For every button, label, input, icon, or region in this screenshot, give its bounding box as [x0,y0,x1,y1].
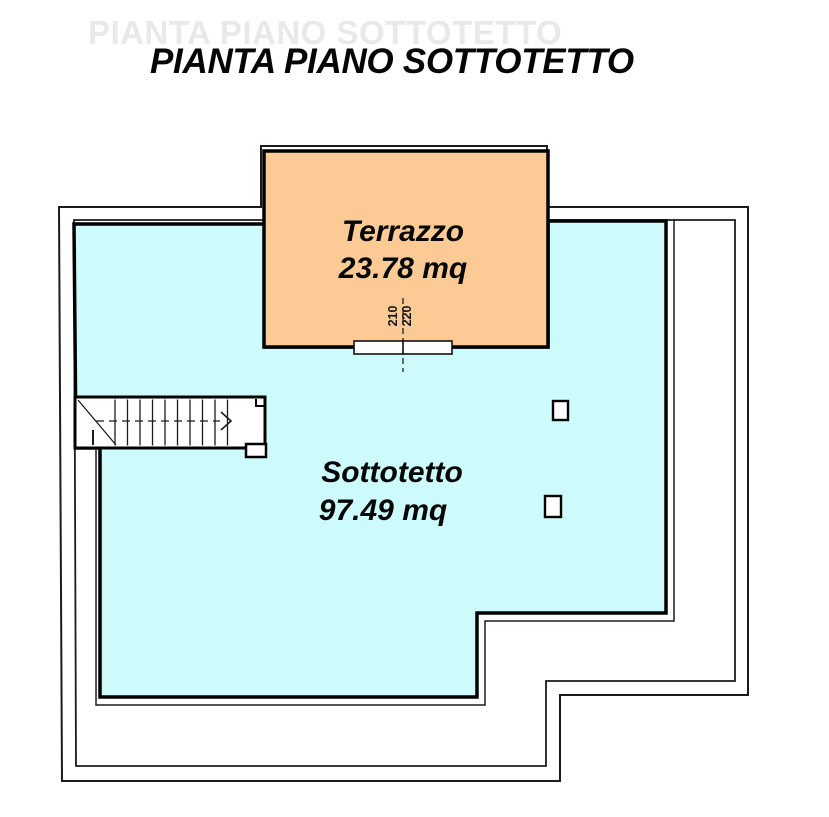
skylight-2 [545,496,561,517]
skylight-1 [553,401,568,420]
staircase [75,397,266,457]
terrazzo-area-label: 23.78 mq [338,252,467,285]
sottotetto-area-label: 97.49 mq [319,494,447,527]
terrazzo-label: Terrazzo [342,215,464,248]
floor-plan-svg: 210 220 [0,0,829,817]
door-dim-numerator: 210 [386,306,400,327]
door-dim-denominator: 220 [400,306,414,327]
floor-plan-page: PIANTA PIANO SOTTOTETTO PIANTA PIANO SOT… [0,0,829,817]
sottotetto-label: Sottotetto [321,456,463,489]
stair-pillar [246,444,266,457]
stair-outline [75,397,265,448]
